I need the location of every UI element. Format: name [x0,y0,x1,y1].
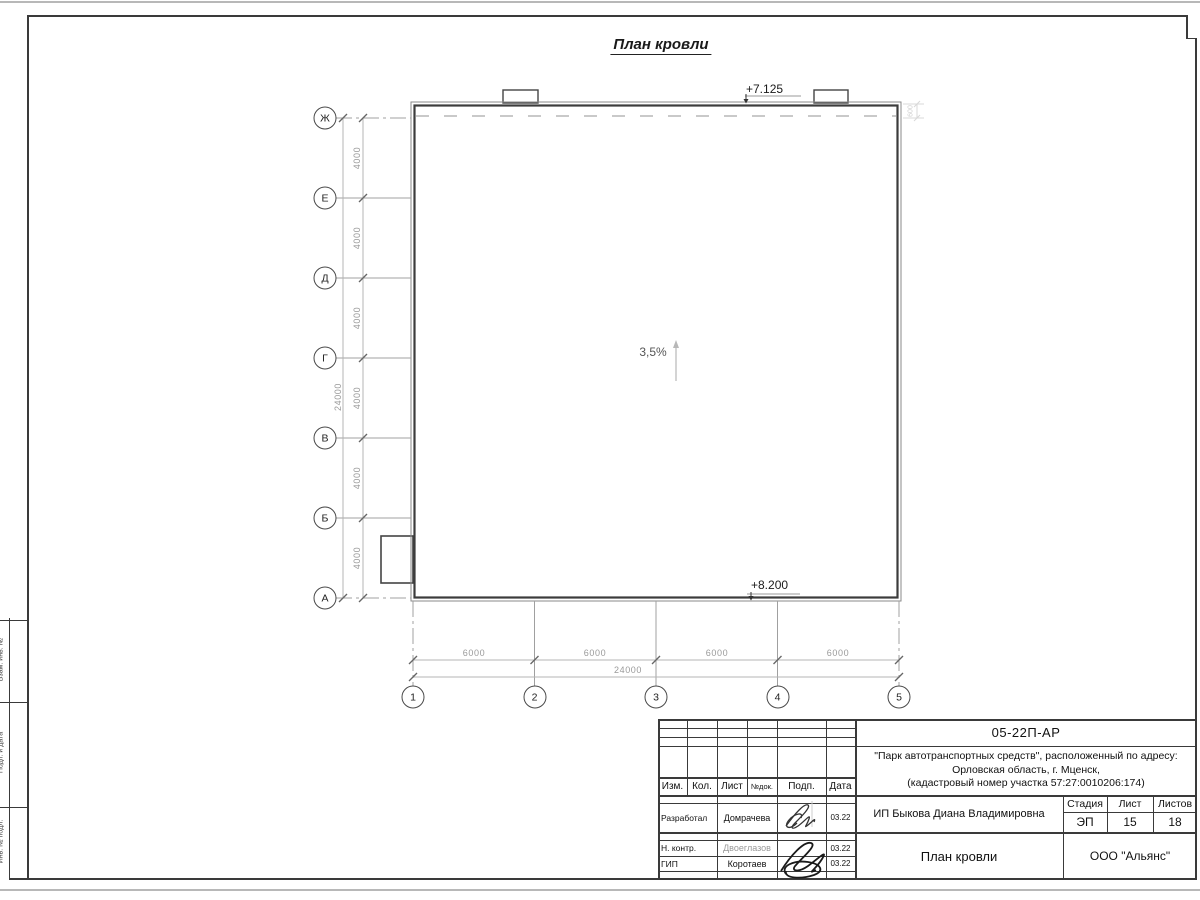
elevation-top-label: +7.125 [746,82,783,96]
slope-arrow [673,340,679,381]
drawing-sheet: Взам. инв. № Подп. и дата Инв. № подл. [0,0,1200,900]
title-block: 05-22П-АР "Парк автотранспортных средств… [658,719,1197,880]
dim-label: 4000 [352,387,362,409]
number-axis-lines [413,601,899,686]
dim-label: 4000 [352,467,362,489]
axis-bubble-number: 3 [645,686,668,709]
signature-razrabotal [786,805,815,828]
axis-bubble-letter: Д [314,267,337,290]
dim-total-label: 24000 [333,383,343,411]
axis-bubble-letter: Ж [314,107,337,130]
elevation-bottom-label: +8.200 [751,578,788,592]
parapet-dim-label: 600 [908,105,915,117]
axis-bubble-number: 2 [523,686,546,709]
dim-label: 6000 [706,648,728,658]
drawing-title-wrap: План кровли [610,36,711,54]
roof-hatch-right [814,90,848,103]
roof-protrusion [381,536,413,583]
dim-label: 4000 [352,307,362,329]
dim-total-label: 24000 [614,665,642,675]
axis-bubble-letter: В [314,427,337,450]
signature-gip [781,843,824,872]
axis-bubble-number: 1 [402,686,425,709]
drawing-title: План кровли [610,36,711,55]
dim-label: 6000 [827,648,849,658]
dim-label: 6000 [584,648,606,658]
dim-label: 6000 [463,648,485,658]
signatures [658,719,1197,880]
dim-label: 4000 [352,147,362,169]
axis-bubble-letter: Г [314,347,337,370]
dim-label: 4000 [352,547,362,569]
elevation-bottom-leader [747,592,800,601]
axis-bubble-number: 4 [766,686,789,709]
axis-bubble-letter: Е [314,187,337,210]
dim-label: 4000 [352,227,362,249]
axis-bubble-letter: А [314,587,337,610]
axis-bubble-number: 5 [888,686,911,709]
axis-bubble-letter: Б [314,507,337,530]
roof-hatch-left [503,90,538,103]
letter-axis-lines [336,118,411,598]
slope-label: 3,5% [639,345,666,359]
